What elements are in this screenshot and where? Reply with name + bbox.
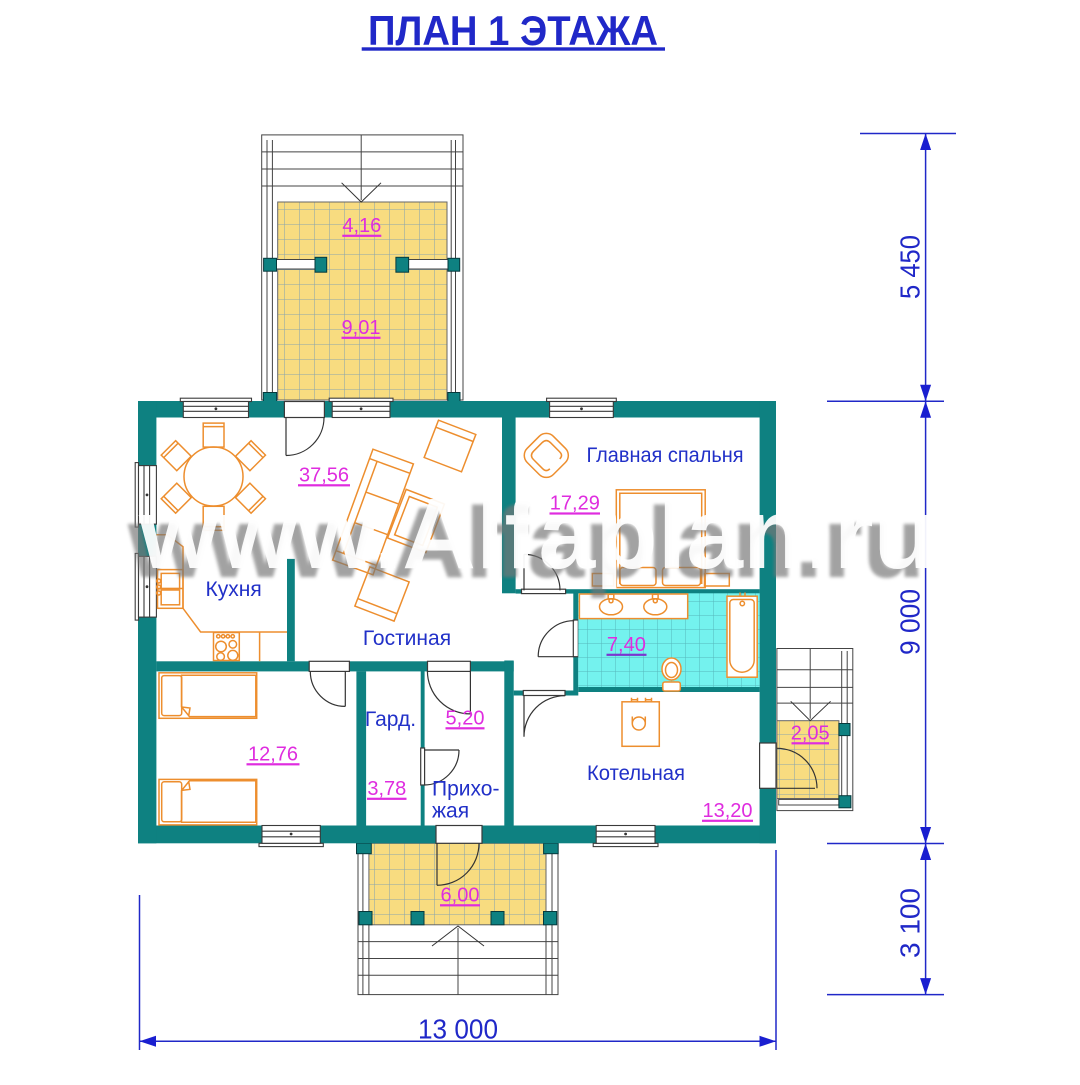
svg-text:жая: жая bbox=[432, 800, 469, 823]
svg-text:4,16: 4,16 bbox=[342, 215, 381, 237]
svg-text:Кухня: Кухня bbox=[205, 578, 261, 601]
svg-text:6,00: 6,00 bbox=[441, 885, 480, 907]
svg-text:Гостиная: Гостиная bbox=[363, 627, 451, 650]
svg-text:3 100: 3 100 bbox=[895, 888, 926, 958]
svg-text:Прихо-: Прихо- bbox=[432, 778, 499, 801]
svg-text:Гард.: Гард. bbox=[365, 708, 416, 731]
svg-text:17,29: 17,29 bbox=[550, 493, 600, 515]
svg-text:ПЛАН 1 ЭТАЖА: ПЛАН 1 ЭТАЖА bbox=[368, 7, 658, 54]
svg-text:5 450: 5 450 bbox=[895, 235, 926, 299]
svg-text:5,20: 5,20 bbox=[446, 708, 485, 730]
svg-text:Котельная: Котельная bbox=[587, 762, 685, 785]
svg-text:37,56: 37,56 bbox=[299, 465, 349, 487]
svg-text:9,01: 9,01 bbox=[342, 317, 381, 339]
svg-text:3,78: 3,78 bbox=[367, 778, 406, 800]
svg-text:Главная спальня: Главная спальня bbox=[587, 444, 744, 467]
svg-text:7,40: 7,40 bbox=[607, 634, 646, 656]
svg-text:2,05: 2,05 bbox=[791, 723, 830, 745]
svg-text:13,20: 13,20 bbox=[702, 800, 752, 822]
svg-text:12,76: 12,76 bbox=[248, 744, 298, 766]
svg-text:www.Alfaplan.ru: www.Alfaplan.ru bbox=[138, 478, 936, 590]
svg-text:13 000: 13 000 bbox=[418, 1014, 498, 1045]
